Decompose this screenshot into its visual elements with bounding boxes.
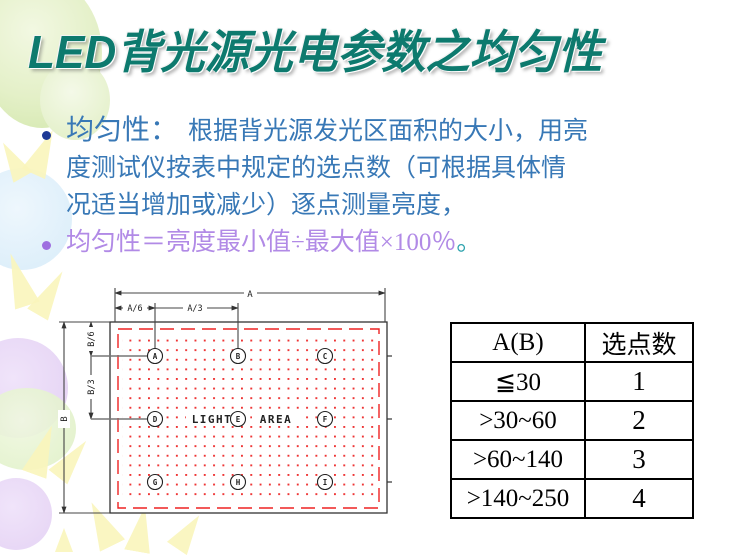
svg-text:C: C <box>323 352 328 361</box>
point-D: D <box>148 412 163 427</box>
formula-text: 均匀性＝亮度最小值÷最大值×100％ <box>66 229 456 256</box>
sun-ray-icon <box>55 528 73 552</box>
range-cell: >60~140 <box>451 440 585 479</box>
slide-title: LED背光源光电参数之均匀性 <box>28 16 700 82</box>
table-row: >60~140 3 <box>451 440 693 479</box>
bullet-line: 况适当增加或减少）逐点测量亮度， <box>66 187 716 224</box>
count-cell: 2 <box>585 401 693 440</box>
svg-text:H: H <box>236 478 241 487</box>
table-row: >140~250 4 <box>451 479 693 518</box>
bullet-lead: 均匀性： <box>66 115 178 146</box>
point-A: A <box>148 349 163 364</box>
count-cell: 1 <box>585 362 693 401</box>
bullet-line-text: 根据背光源发光区面积的大小，用亮 <box>188 118 588 145</box>
svg-text:F: F <box>323 415 328 424</box>
measurement-points-diagram: A A/6 A/3 B B/6 B/3 LIGHT AREA A B C D E… <box>55 282 395 527</box>
svg-text:I: I <box>323 478 328 487</box>
bullet-dot <box>42 131 51 140</box>
svg-text:E: E <box>236 415 241 424</box>
bullet-line: 度测试仪按表中规定的选点数（可根据具体情 <box>66 150 716 187</box>
svg-text:D: D <box>153 415 158 424</box>
point-F: F <box>318 412 333 427</box>
dim-label-B3: B/3 <box>87 379 97 394</box>
point-I: I <box>318 475 333 490</box>
point-H: H <box>231 475 246 490</box>
svg-text:A: A <box>153 352 158 361</box>
svg-text:B: B <box>236 352 241 361</box>
table-row: >30~60 2 <box>451 401 693 440</box>
count-cell: 3 <box>585 440 693 479</box>
dim-label-A: A <box>247 290 253 300</box>
edge-ticks <box>387 356 392 482</box>
range-cell: ≦30 <box>451 362 585 401</box>
light-label: LIGHT <box>192 413 233 426</box>
range-cell: >140~250 <box>451 479 585 518</box>
count-cell: 4 <box>585 479 693 518</box>
formula-period: 。 <box>456 229 481 256</box>
table-header-count: 选点数 <box>585 323 693 362</box>
point-G: G <box>148 475 163 490</box>
table-row: ≦30 1 <box>451 362 693 401</box>
dim-label-A3: A/3 <box>187 304 202 314</box>
range-cell: >30~60 <box>451 401 585 440</box>
dim-label-A6: A/6 <box>127 304 142 314</box>
table-header-row: A(B) 选点数 <box>451 323 693 362</box>
dim-label-B6: B/6 <box>87 331 97 346</box>
bullet-line: 均匀性：根据背光源发光区面积的大小，用亮 <box>66 112 716 150</box>
point-C: C <box>318 349 333 364</box>
balloon-purple-icon <box>0 478 52 550</box>
table-header-ab: A(B) <box>451 323 585 362</box>
bullet-uniformity-definition: 均匀性：根据背光源发光区面积的大小，用亮 度测试仪按表中规定的选点数（可根据具体… <box>66 112 716 224</box>
point-E: E <box>231 412 246 427</box>
dim-label-B: B <box>60 416 70 421</box>
area-label: AREA <box>260 413 293 426</box>
point-count-table: A(B) 选点数 ≦30 1 >30~60 2 >60~140 3 >140~2… <box>450 322 694 519</box>
bullet-uniformity-formula: 均匀性＝亮度最小值÷最大值×100％。 <box>66 226 716 260</box>
point-B: B <box>231 349 246 364</box>
svg-text:G: G <box>153 478 158 487</box>
bullet-dot <box>42 241 51 250</box>
